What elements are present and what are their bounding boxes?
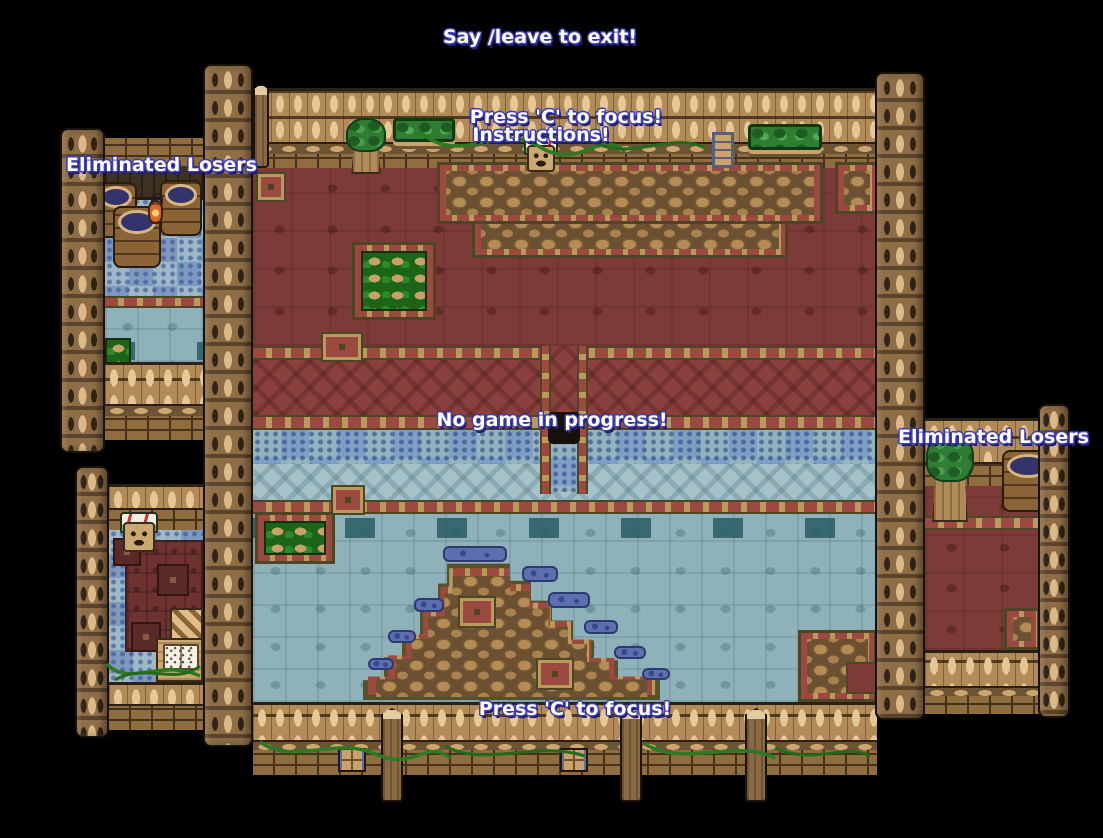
left-room-border-strip (105, 296, 203, 308)
left-bottom-room-bottom-fence (109, 682, 203, 706)
corridor-fill (550, 346, 578, 416)
motif-square-left (258, 174, 284, 200)
planter-tree-right-pot (932, 476, 968, 522)
ladder (712, 132, 734, 168)
right-room-bottom-fence (925, 650, 1040, 688)
right-room-dirt-patch (1004, 608, 1040, 650)
moss-patch-upper (352, 242, 436, 320)
dirt-patch-top-wide (437, 162, 823, 224)
blue-rocks-3 (388, 630, 416, 643)
blue-rocks-6 (548, 592, 590, 608)
water-barrel-2 (160, 180, 202, 236)
left-bottom-room-bottom-brick (109, 706, 203, 730)
dark-tile-2 (157, 564, 189, 596)
hedge-box-1 (393, 118, 455, 142)
blue-rocks-7 (584, 620, 618, 634)
mound-motif-2 (538, 660, 572, 688)
blue-rocks-4 (368, 658, 394, 670)
bottom-post-2 (620, 708, 642, 802)
lantern (148, 200, 163, 224)
hedge-box-2 (748, 124, 822, 150)
mound-motif-1 (460, 598, 494, 626)
npc-face (527, 145, 555, 172)
helper-npc[interactable] (120, 512, 158, 552)
bottom-post-3 (745, 708, 767, 802)
left-room-pillar (60, 128, 105, 453)
border-notch-upper (323, 334, 361, 360)
left-bottom-room-pillar (75, 466, 109, 738)
game-viewport: Say /leave to exit! Press 'C' to focus! … (0, 0, 1103, 838)
blue-rocks-9 (642, 668, 670, 680)
border-notch-lower (333, 487, 363, 513)
left-room-moss (105, 338, 131, 364)
red-tile-block (846, 662, 878, 694)
left-room-bottom-fence (105, 362, 203, 406)
desk-back (170, 608, 203, 640)
main-right-pillar (875, 72, 925, 720)
blue-rocks-8 (614, 646, 646, 659)
left-room-bottom-brick (105, 416, 203, 440)
right-room-pillar (1038, 404, 1070, 718)
eliminated-left-label: Eliminated Losers (66, 154, 257, 176)
corner-dirt-block (835, 162, 879, 214)
open-book[interactable] (163, 644, 199, 670)
blue-rocks-1 (443, 546, 507, 562)
dirt-mound (363, 558, 663, 700)
bottom-post-1 (381, 708, 403, 802)
right-room-bottom-ledge (925, 688, 1040, 696)
focus-hint-bottom-text: Press 'C' to focus! (479, 698, 671, 720)
blue-rocks-5 (522, 566, 558, 582)
main-teal-tile-row (253, 518, 877, 538)
right-room-bottom-brick (925, 696, 1040, 714)
left-bottom-room-fence (109, 484, 203, 510)
status-text: No game in progress! (436, 409, 667, 431)
planter-tree-top-bush (346, 118, 386, 152)
npc-face (123, 522, 154, 552)
blue-rocks-2 (414, 598, 444, 612)
instructions-label: Instructions! (472, 124, 609, 146)
moss-patch-lower (255, 512, 335, 564)
exit-hint-text: Say /leave to exit! (443, 26, 637, 48)
left-room-bottom-ledge (105, 406, 203, 416)
wall-window-1 (338, 748, 366, 772)
wall-window-2 (560, 748, 588, 772)
eliminated-right-label: Eliminated Losers (898, 426, 1089, 448)
